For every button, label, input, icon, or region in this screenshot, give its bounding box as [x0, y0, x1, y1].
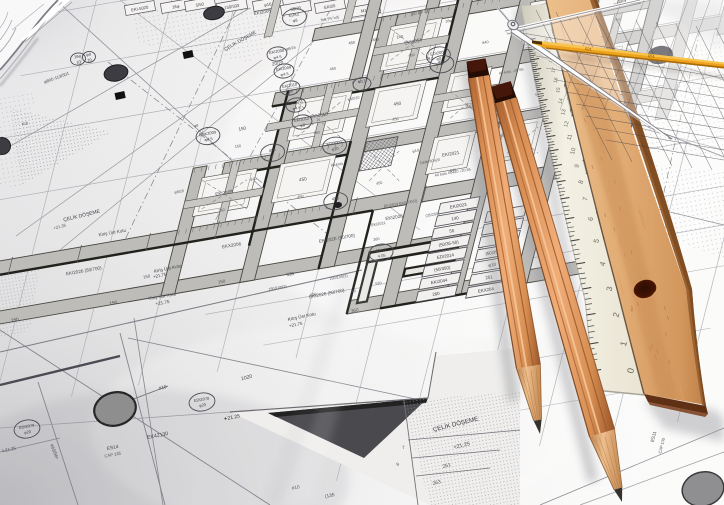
svg-text:φ8: φ8: [193, 124, 198, 129]
